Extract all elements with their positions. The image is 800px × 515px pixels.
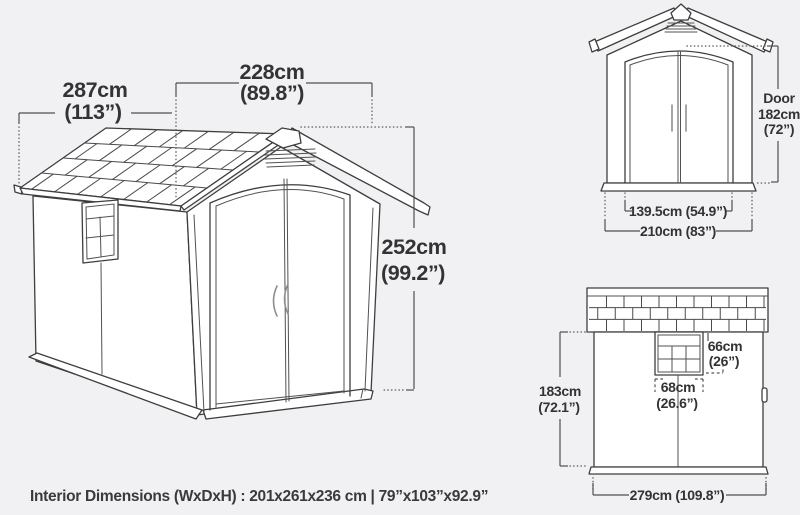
dim-front-overall-width: 210cm (83”)	[605, 219, 752, 239]
door-height-in-label: (72”)	[764, 121, 794, 137]
interior-dimensions-text: Interior Dimensions (WxDxH) : 201x261x23…	[30, 488, 488, 505]
depth-cm-label: 287cm	[63, 78, 128, 102]
side-view-window	[655, 332, 703, 375]
dim-side-overall-width: 279cm (109.8”)	[593, 474, 766, 503]
height-in-label: (99.2”)	[381, 261, 445, 285]
height-cm-label: 252cm	[382, 235, 447, 259]
front-elevation-view: Door 182cm (72”) 139.5cm (54.9”) 210cm (…	[589, 4, 800, 239]
window-height-cm-label: 66cm	[708, 338, 743, 354]
window-height-in-label: (26”)	[709, 353, 739, 369]
side-overall-width-label: 279cm (109.8”)	[630, 487, 725, 503]
side-view-roof	[587, 288, 768, 332]
shed-dimension-diagram: 287cm (113”) 228cm (89.8”) 252cm (99.2”)	[0, 0, 800, 515]
side-window	[82, 200, 118, 263]
front-overall-width-label: 210cm (83”)	[640, 223, 716, 239]
side-elevation-view: 66cm (26”) 68cm (26.6”) 183cm (72.1”)	[538, 288, 768, 503]
window-width-in-label: (26.6”)	[656, 395, 697, 411]
door-height-cm-label: 182cm	[758, 106, 800, 122]
dim-window-height: 66cm (26”)	[706, 333, 742, 373]
front-ridge-cap	[671, 4, 691, 20]
wall-height-in-label: (72.1”)	[538, 399, 579, 415]
diagram-scene: 287cm (113”) 228cm (89.8”) 252cm (99.2”)	[0, 0, 800, 515]
door-width-label: 139.5cm (54.9”)	[629, 203, 727, 219]
depth-in-label: (113”)	[64, 100, 122, 124]
side-view-base	[589, 467, 768, 474]
width-in-label: (89.8”)	[240, 81, 304, 105]
dim-wall-height: 183cm (72.1”)	[538, 332, 589, 466]
main-3d-view: 287cm (113”) 228cm (89.8”) 252cm (99.2”)	[14, 60, 446, 419]
window-width-cm-label: 68cm	[661, 379, 696, 395]
front-view-wall	[607, 21, 752, 183]
dim-door-width: 139.5cm (54.9”)	[605, 193, 752, 219]
front-view-base	[601, 183, 756, 191]
wall-height-cm-label: 183cm	[539, 383, 581, 399]
side-door-hinge	[762, 388, 767, 402]
door-label: Door	[763, 90, 795, 106]
